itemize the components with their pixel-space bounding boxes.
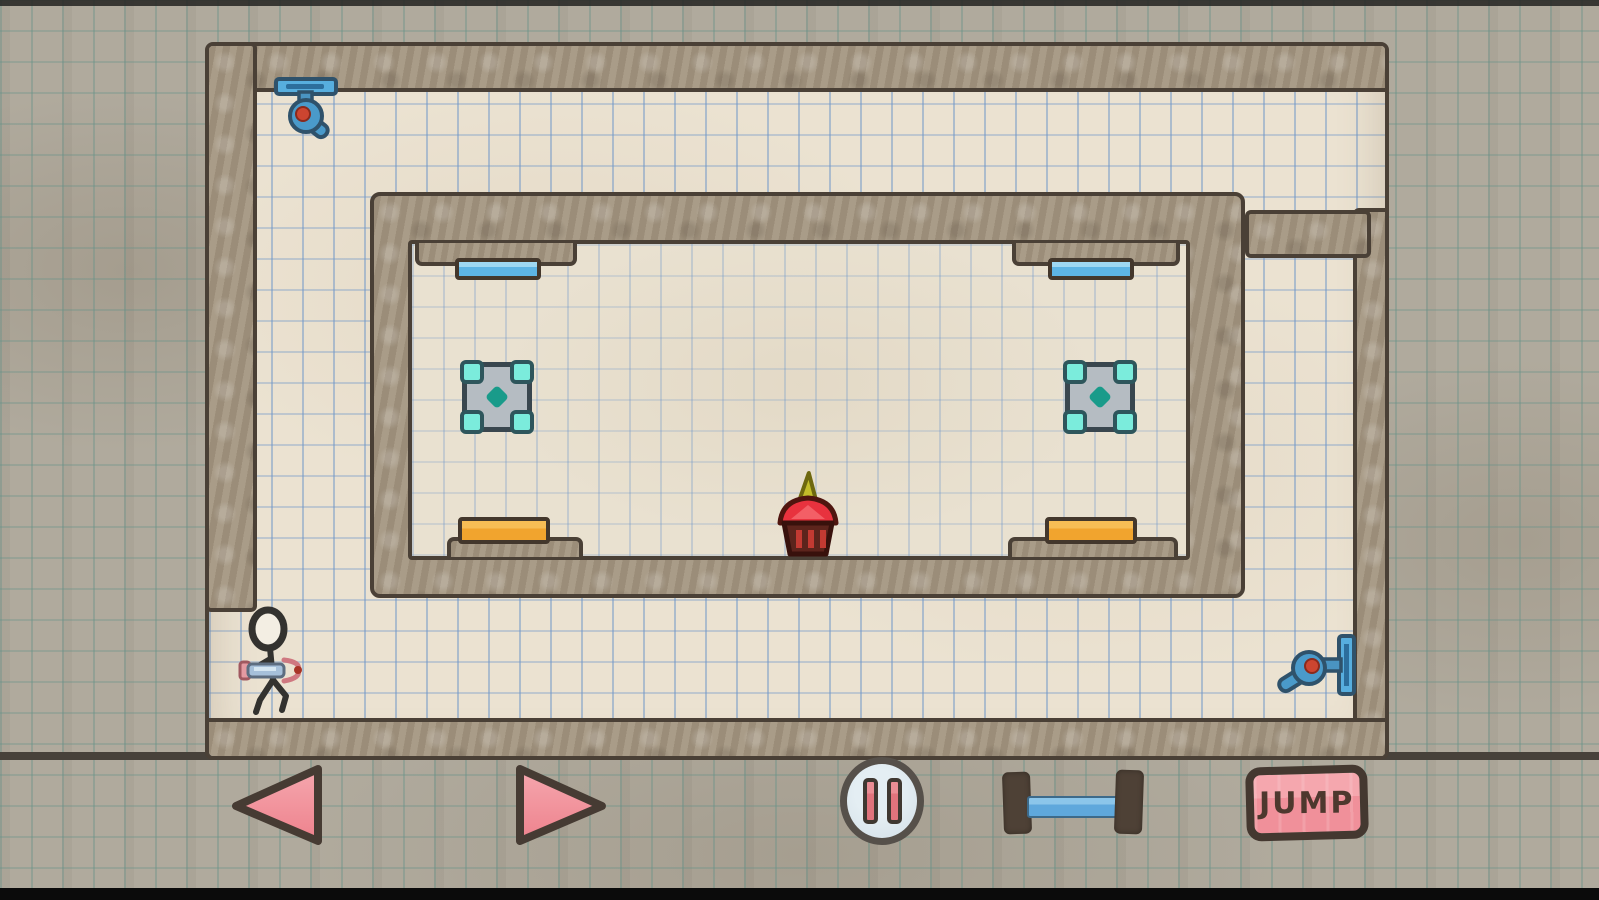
crystal-pad-icon — [1065, 362, 1135, 432]
gem-icon — [510, 410, 534, 434]
right-arrow-icon — [520, 769, 602, 841]
jump-button-label: JUMP — [1259, 785, 1355, 821]
game-screen: JUMP — [0, 0, 1599, 900]
top-edge — [0, 0, 1599, 6]
inner-room-interior — [408, 240, 1190, 560]
platform-tool-button[interactable] — [1003, 768, 1147, 838]
portal-emitter-icon — [1276, 630, 1360, 704]
gem-icon — [1063, 410, 1087, 434]
gem-icon — [460, 360, 484, 384]
left-arrow-icon — [236, 769, 318, 841]
wall-top — [205, 42, 1389, 92]
orange-platform-right — [1045, 517, 1137, 544]
pause-icon — [887, 778, 902, 824]
platform-icon — [1027, 796, 1123, 818]
inner-room — [370, 192, 1245, 598]
move-right-button[interactable] — [512, 760, 612, 848]
portal-emitter-icon — [272, 74, 352, 152]
portal-gun-icon — [240, 660, 302, 681]
gem-icon — [1113, 360, 1137, 384]
pause-icon — [863, 778, 878, 824]
orange-platform-left — [458, 517, 550, 544]
gem-icon — [1063, 360, 1087, 384]
pad-core-icon — [1088, 385, 1112, 409]
wall-connector-top-right — [1245, 210, 1371, 258]
blue-platform-right — [1048, 258, 1134, 280]
blue-platform-left — [455, 258, 541, 280]
gem-icon — [510, 360, 534, 384]
gem-icon — [460, 410, 484, 434]
pause-button[interactable] — [840, 757, 924, 845]
playfield — [205, 42, 1389, 760]
pad-core-icon — [485, 385, 509, 409]
bottom-edge — [0, 888, 1599, 900]
wall-left — [205, 42, 257, 612]
cupcake-icon — [766, 470, 850, 558]
move-left-button[interactable] — [226, 760, 326, 848]
crystal-pad-icon — [462, 362, 532, 432]
platform-icon — [1114, 770, 1144, 835]
floor — [205, 718, 1389, 760]
gem-icon — [1113, 410, 1137, 434]
stick-figure-icon — [228, 604, 312, 718]
jump-button[interactable]: JUMP — [1245, 764, 1369, 841]
